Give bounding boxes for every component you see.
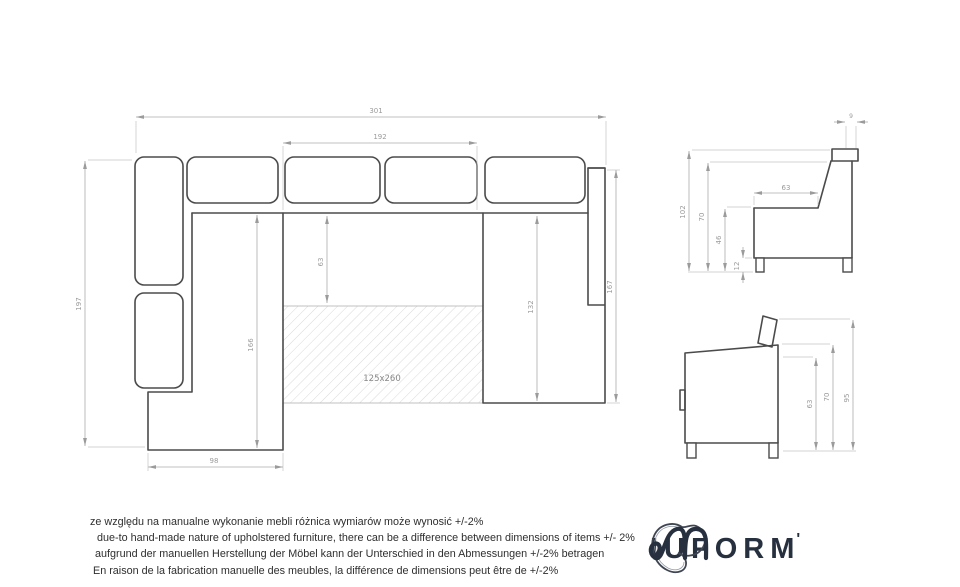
leg: [687, 443, 696, 458]
leg: [843, 258, 852, 272]
disclaimer-pl: ze względu na manualne wykonanie mebli r…: [90, 514, 635, 530]
side-headrest: [832, 149, 858, 161]
cushion: [485, 157, 585, 203]
dim-label-total-width: 301: [369, 107, 382, 115]
sleeping-area-label: 125x260: [363, 374, 400, 384]
dim-label-wing-width: 98: [210, 457, 219, 465]
dim-label-back-depth: 63: [317, 258, 325, 267]
dim-label-arm-height: 70: [823, 393, 831, 402]
dim-label-seat-height: 46: [715, 235, 723, 244]
miuform-m-glyph: [648, 520, 712, 564]
dim-label-chaise-inner: 132: [527, 300, 535, 313]
dim-label-left-depth: 197: [75, 297, 83, 310]
front-view-frame: [680, 316, 778, 458]
dim-label-chaise-depth: 167: [606, 280, 614, 293]
disclaimer-block: ze względu na manualne wykonanie mebli r…: [90, 514, 635, 579]
top-view-drawing: 301 192 197 166 63 132 167 98 125x260: [75, 107, 620, 471]
dim-label-seat-span: 192: [373, 133, 386, 141]
cushion: [135, 157, 183, 285]
dim-label-total-height: 102: [679, 205, 687, 218]
disclaimer-en: due-to hand-made nature of upholstered f…: [97, 530, 635, 546]
front-headrest-flap: [758, 316, 777, 347]
side-view-drawing: 102 70 46 12 63 9: [679, 113, 868, 283]
dim-label-back-height: 70: [698, 213, 706, 222]
front-view-dimensions: 63 70 95: [779, 319, 856, 451]
side-body: [754, 161, 852, 258]
miuform-logo: IUFORM ': [648, 520, 960, 578]
dim-label-headrest-height: 95: [843, 394, 851, 403]
side-seat-and-back: [754, 161, 831, 208]
front-side-bump: [680, 390, 685, 410]
spec-sheet-page: 301 192 197 166 63 132 167 98 125x260: [0, 0, 960, 587]
cushion: [135, 293, 183, 388]
sleeping-area: [283, 306, 483, 403]
cushion: [187, 157, 278, 203]
dim-label-left-inner: 166: [247, 338, 255, 352]
sleeping-area-hatch: [283, 306, 483, 403]
disclaimer-fr: En raison de la fabrication manuelle des…: [93, 563, 635, 579]
leg: [756, 258, 764, 272]
dim-label-headrest-width: 9: [849, 113, 853, 120]
leg: [769, 443, 778, 458]
disclaimer-de: aufgrund der manuellen Herstellung der M…: [95, 546, 635, 562]
miuform-trademark-prime: ': [796, 531, 800, 549]
dim-label-seat-depth: 63: [782, 184, 791, 192]
side-view-frame: [754, 149, 858, 272]
cushion: [385, 157, 477, 203]
front-view-drawing: 63 70 95: [680, 316, 856, 458]
dim-label-leg-height: 12: [733, 262, 741, 271]
dim-label-body-height: 63: [806, 400, 814, 409]
cushion: [285, 157, 380, 203]
front-body: [685, 345, 778, 443]
technical-drawing: 301 192 197 166 63 132 167 98 125x260: [0, 0, 960, 587]
